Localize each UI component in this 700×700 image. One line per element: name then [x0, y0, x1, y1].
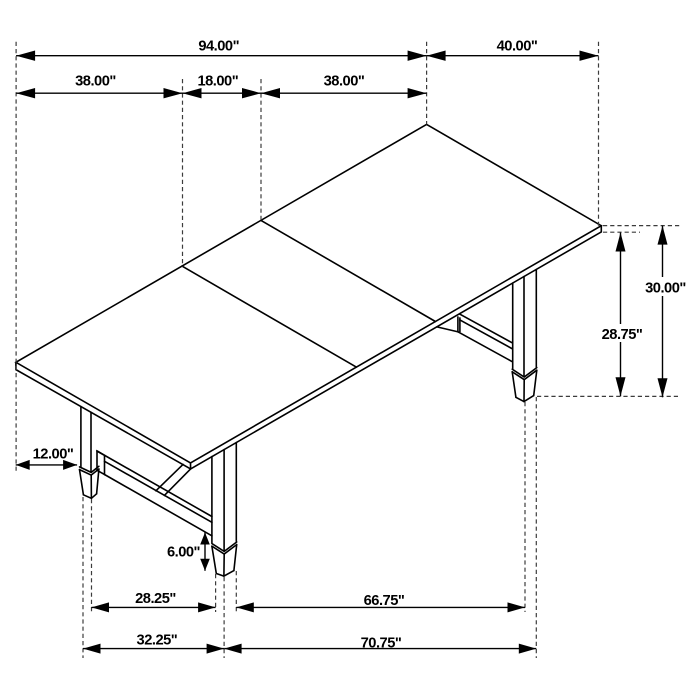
svg-text:38.00": 38.00" [75, 73, 116, 89]
svg-text:6.00": 6.00" [167, 545, 200, 561]
svg-text:28.25": 28.25" [135, 591, 176, 607]
svg-text:18.00": 18.00" [197, 73, 238, 89]
svg-text:32.25": 32.25" [137, 633, 178, 649]
svg-text:40.00": 40.00" [497, 38, 538, 54]
svg-text:66.75": 66.75" [364, 593, 405, 609]
svg-text:12.00": 12.00" [33, 446, 74, 462]
svg-text:94.00": 94.00" [198, 38, 239, 54]
svg-text:30.00": 30.00" [645, 281, 686, 297]
svg-text:28.75": 28.75" [602, 327, 643, 343]
svg-text:70.75": 70.75" [361, 635, 402, 651]
svg-text:38.00": 38.00" [324, 73, 365, 89]
